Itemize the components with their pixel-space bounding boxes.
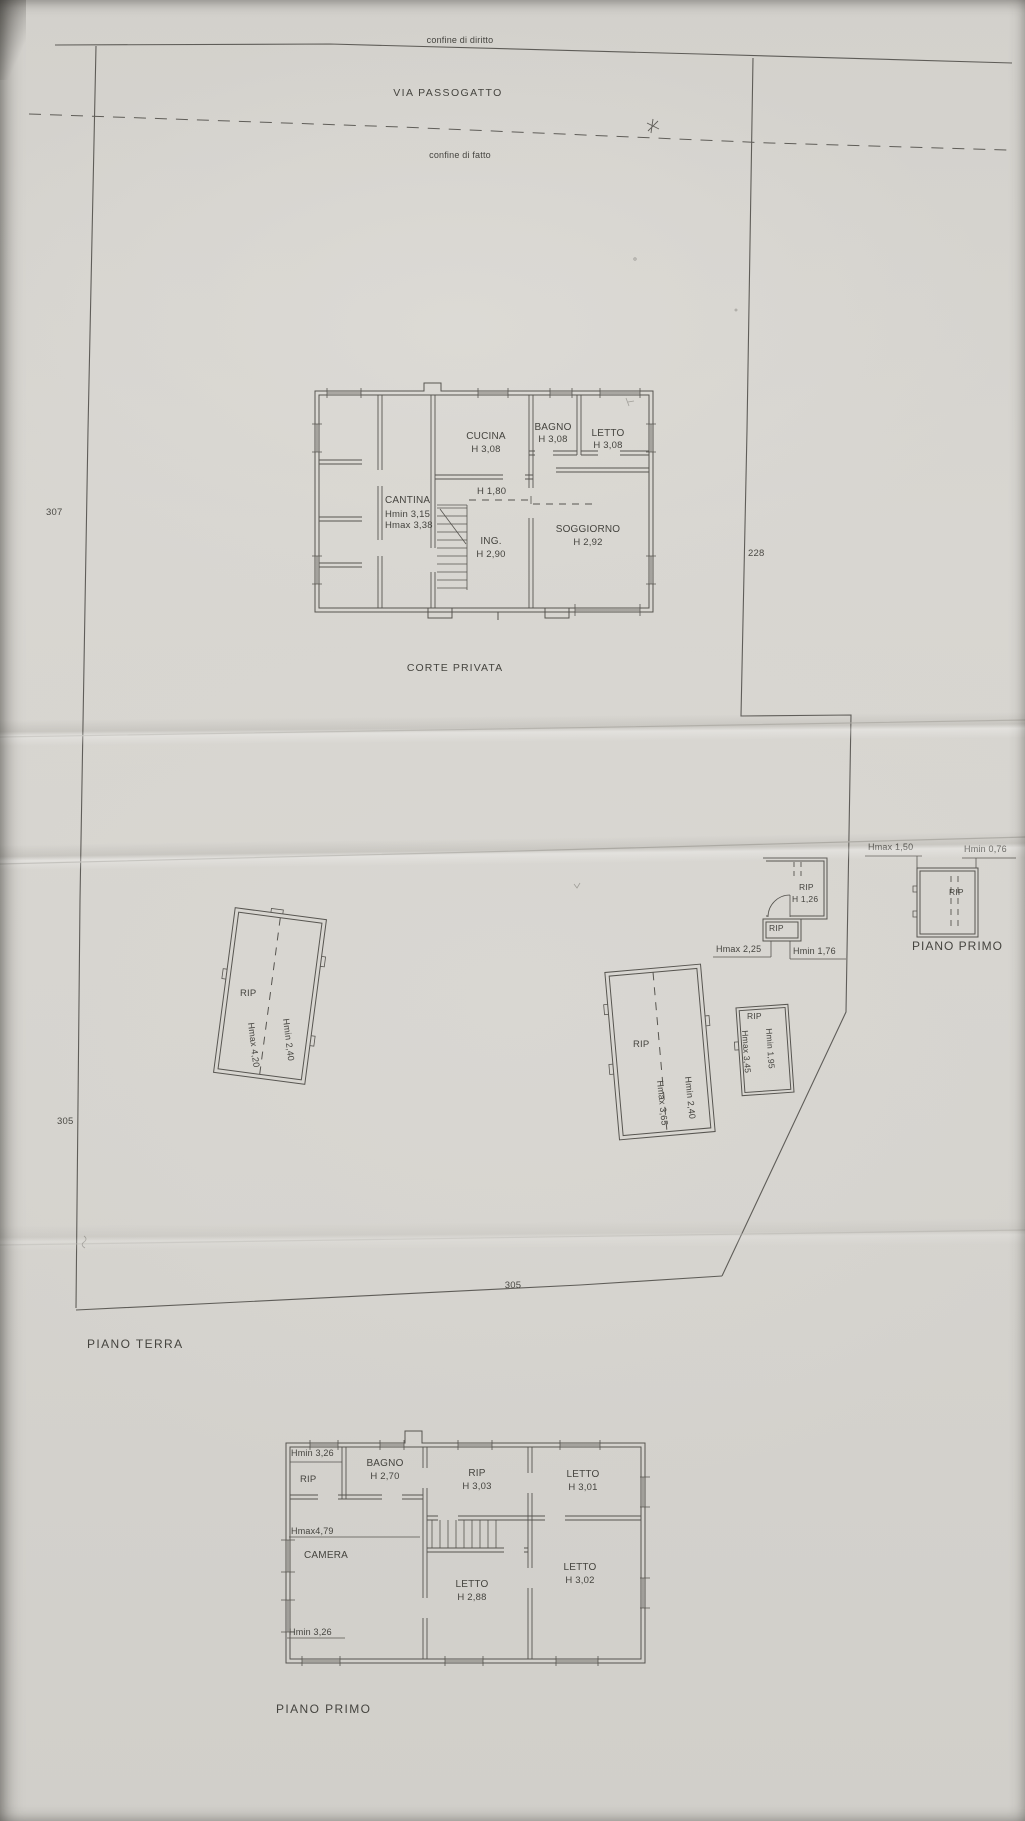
rip-central-label: RIP	[633, 1040, 649, 1050]
ff-letto-center-label: LETTO	[455, 1580, 488, 1590]
room-cucina-height: H 3,08	[471, 445, 500, 455]
courtyard-label: CORTE PRIVATA	[407, 663, 503, 674]
rip-west-label: RIP	[240, 989, 256, 999]
ff-camera-hmin: Hmin 3,26	[289, 1628, 332, 1637]
ff-bagno-height: H 2,70	[370, 1472, 399, 1482]
room-letto-height: H 3,08	[593, 441, 622, 451]
ff-camera-hmax: Hmax4,79	[291, 1527, 334, 1536]
first-floor-title: PIANO PRIMO	[276, 1703, 371, 1715]
ground-floor-stairs	[437, 505, 467, 590]
dim-west-lower: 305	[57, 1117, 73, 1127]
rip-north-height: H 1,26	[792, 895, 818, 904]
survey-marker-icon	[647, 119, 659, 133]
ff-rip-center-height: H 3,03	[462, 1482, 491, 1492]
paper-crease-lines	[0, 720, 1025, 1245]
scan-specks	[82, 258, 737, 1248]
ff-rip-nw-hmin: Hmin 3,26	[291, 1449, 334, 1458]
room-bagno-label: BAGNO	[534, 423, 571, 433]
rip-north-annex-hmax: Hmax 2,25	[716, 945, 761, 954]
ff-letto-ne-height: H 3,01	[568, 1483, 597, 1493]
room-bagno-height: H 3,08	[538, 435, 567, 445]
ground-floor-plan-outline	[312, 383, 656, 620]
ff-letto-se-label: LETTO	[563, 1563, 596, 1573]
rip-small-hmax: Hmax 3,45	[741, 1030, 752, 1073]
rip-small-label: RIP	[747, 1012, 762, 1021]
room-soggiorno-height: H 2,92	[573, 538, 602, 548]
rip-north-annex-label: RIP	[769, 924, 784, 933]
legal-boundary-label: confine di diritto	[427, 36, 494, 45]
first-floor-plan-outline	[281, 1431, 650, 1666]
rip-north-label: RIP	[799, 883, 814, 892]
rip-small-hmin: Hmin 1,95	[765, 1028, 776, 1069]
understair-height-label: H 1,80	[477, 487, 506, 497]
ff-camera-label: CAMERA	[304, 1551, 348, 1561]
ff-letto-se-height: H 3,02	[565, 1576, 594, 1586]
rip-sketch-label: RIP	[949, 888, 964, 897]
ff-letto-center-height: H 2,88	[457, 1593, 486, 1603]
rip-west-outline	[210, 903, 331, 1085]
room-ingresso-label: ING.	[480, 537, 501, 547]
scanned-floor-plan-sheet: confine di diritto VIA PASSOGATTO confin…	[0, 0, 1025, 1821]
ff-letto-ne-label: LETTO	[566, 1470, 599, 1480]
dim-south: 305	[505, 1281, 521, 1291]
ground-floor-title: PIANO TERRA	[87, 1338, 184, 1350]
rip-sketch-hmin: Hmin 0,76	[964, 845, 1007, 854]
rip-first-floor-sketch-outline	[865, 856, 1016, 937]
dim-west: 307	[46, 508, 62, 518]
room-letto-label: LETTO	[591, 429, 624, 439]
room-cantina-hmin: Hmin 3,15	[385, 510, 430, 520]
dim-east: 228	[748, 549, 764, 559]
first-floor-stairs	[432, 1520, 496, 1548]
room-cantina-label: CANTINA	[385, 496, 430, 506]
room-ingresso-height: H 2,90	[476, 550, 505, 560]
room-cucina-label: CUCINA	[466, 432, 506, 442]
ff-rip-center-label: RIP	[468, 1469, 485, 1479]
room-soggiorno-label: SOGGIORNO	[556, 525, 621, 535]
rip-sketch-hmax: Hmax 1,50	[868, 843, 913, 852]
rip-north-annex-hmin: Hmin 1,76	[793, 947, 836, 956]
ff-bagno-label: BAGNO	[366, 1459, 403, 1469]
site-boundary-lines	[29, 44, 1012, 1310]
ff-rip-nw-label: RIP	[300, 1475, 316, 1485]
rip-sketch-title: PIANO PRIMO	[912, 940, 1003, 952]
de-facto-boundary-label: confine di fatto	[429, 151, 491, 160]
plan-linework	[0, 0, 1025, 1821]
room-cantina-hmax: Hmax 3,38	[385, 521, 433, 531]
road-name-label: VIA PASSOGATTO	[393, 88, 502, 99]
